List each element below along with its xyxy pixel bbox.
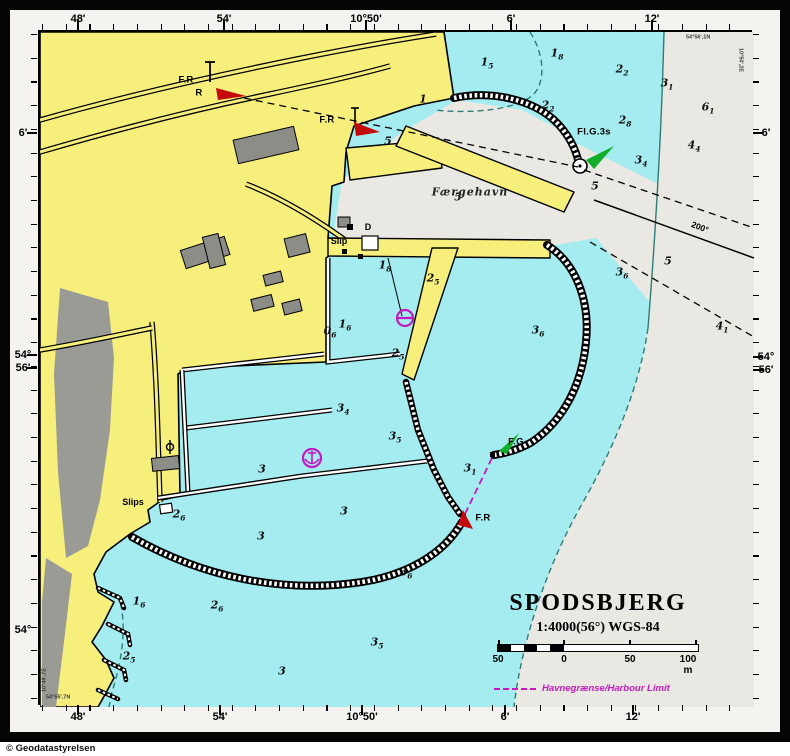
border-tick <box>31 58 37 59</box>
border-tick <box>31 508 37 509</box>
light-label-flg3s: Fl.G.3s <box>577 127 611 138</box>
border-tick <box>31 271 37 272</box>
border-tick <box>632 705 634 715</box>
border-tick <box>31 224 37 225</box>
border-tick <box>279 24 280 30</box>
border-tick <box>27 367 37 369</box>
bearing-label: 200° <box>690 219 710 235</box>
light-label-inner-fr: F.R <box>319 115 334 126</box>
sounding: 22 <box>542 99 555 114</box>
border-tick <box>587 705 588 711</box>
border-tick <box>31 484 37 485</box>
border-tick <box>31 461 37 462</box>
sounding: 22 <box>616 63 629 78</box>
border-tick <box>365 20 367 30</box>
copyright-note: © Geodatastyrelsen <box>6 743 95 754</box>
border-tick <box>31 318 37 319</box>
border-tick <box>706 24 707 30</box>
border-tick <box>753 81 759 82</box>
border-tick <box>350 24 351 30</box>
border-tick <box>492 24 493 30</box>
dolphin-label: D <box>365 222 372 232</box>
border-tick <box>255 24 256 30</box>
border-tick <box>31 555 37 556</box>
border-tick <box>753 461 759 462</box>
border-tick <box>753 366 759 367</box>
border-tick <box>753 200 759 201</box>
scale-bar-labels: 50 0 50 100 m <box>494 654 702 665</box>
sounding: 35 <box>389 430 402 445</box>
scalebar-50-right: 50 <box>624 654 635 665</box>
border-tick <box>31 295 37 296</box>
border-tick <box>635 24 636 30</box>
sounding: 3 <box>340 505 348 518</box>
border-tick <box>753 295 759 296</box>
border-tick <box>31 342 37 343</box>
border-tick <box>469 24 470 30</box>
border-tick <box>184 24 185 30</box>
harbour-limit-legend: Havnegrænse/Harbour Limit <box>494 683 670 694</box>
border-tick <box>31 579 37 580</box>
border-tick <box>113 705 114 711</box>
border-tick <box>137 705 138 711</box>
sounding: 15 <box>481 56 494 71</box>
border-tick <box>31 105 37 106</box>
border-tick <box>753 105 759 106</box>
border-tick <box>374 705 375 711</box>
border-tick <box>753 58 759 59</box>
border-tick <box>753 34 759 35</box>
border-tick <box>232 705 233 711</box>
border-tick <box>31 129 37 130</box>
border-tick <box>492 705 493 711</box>
sounding: 5 <box>591 180 599 193</box>
sounding: 36 <box>532 324 545 339</box>
sounding: 25 <box>123 650 136 665</box>
border-tick <box>219 705 221 715</box>
scalebar-zero: 0 <box>561 654 567 665</box>
border-tick <box>753 484 759 485</box>
border-tick <box>303 24 304 30</box>
chart-title: SPODSBJERG <box>492 590 704 617</box>
border-tick <box>42 24 43 30</box>
sounding: 41 <box>716 320 729 335</box>
sounding: 18 <box>379 259 392 274</box>
border-tick <box>77 20 79 30</box>
sounding: 5 <box>384 135 392 148</box>
border-tick <box>31 247 37 248</box>
border-tick <box>729 705 730 711</box>
sounding: 3 <box>258 463 266 476</box>
border-tick <box>516 24 517 30</box>
border-tick <box>31 153 37 154</box>
border-tick <box>31 81 37 82</box>
border-tick <box>31 650 37 651</box>
chart-scale-note: 1:4000(56°) WGS-84 <box>492 620 704 636</box>
border-tick <box>753 153 759 154</box>
border-tick <box>510 20 512 30</box>
border-tick <box>31 413 37 414</box>
border-tick <box>753 342 759 343</box>
ferry-harbour-label: Færgehavn <box>432 186 508 199</box>
border-tick <box>445 705 446 711</box>
sounding: 36 <box>400 566 413 581</box>
border-tick <box>504 705 506 715</box>
border-tick <box>27 354 37 356</box>
sounding: 1 <box>419 93 427 106</box>
border-tick <box>137 24 138 30</box>
border-tick <box>161 24 162 30</box>
sounding: 35 <box>371 636 384 651</box>
border-tick <box>31 437 37 438</box>
border-tick <box>421 705 422 711</box>
border-tick <box>31 627 37 628</box>
border-tick <box>729 24 730 30</box>
border-tick <box>31 674 37 675</box>
light-label-south-fr: F.R <box>475 513 490 524</box>
border-tick <box>27 132 37 134</box>
border-tick <box>469 705 470 711</box>
border-tick <box>682 24 683 30</box>
border-tick <box>753 674 759 675</box>
border-tick <box>350 705 351 711</box>
scale-bar <box>497 644 699 652</box>
border-tick <box>445 24 446 30</box>
border-tick <box>31 698 37 699</box>
scalebar-100m: 100 m <box>680 654 697 676</box>
border-tick <box>753 650 759 651</box>
border-tick <box>635 705 636 711</box>
sounding: 44 <box>688 139 701 154</box>
border-tick <box>66 705 67 711</box>
border-tick <box>753 390 759 391</box>
border-tick <box>361 705 363 715</box>
border-tick <box>611 24 612 30</box>
border-tick <box>753 224 759 225</box>
border-tick <box>31 176 37 177</box>
border-tick <box>753 698 759 699</box>
sounding: 16 <box>339 318 352 333</box>
border-tick <box>31 34 37 35</box>
border-tick <box>563 705 564 711</box>
border-tick <box>66 24 67 30</box>
sounding: 25 <box>392 347 405 362</box>
border-tick <box>279 705 280 711</box>
corner-coord-bottom-left-lon: 10°49',7E <box>41 668 47 692</box>
border-tick <box>753 437 759 438</box>
border-tick <box>421 24 422 30</box>
sounding: 26 <box>173 508 186 523</box>
border-tick <box>706 705 707 711</box>
border-tick <box>326 705 327 711</box>
border-tick <box>753 132 763 134</box>
slip-label-north: Slip <box>331 236 348 246</box>
border-tick <box>658 705 659 711</box>
border-tick <box>587 24 588 30</box>
border-tick <box>682 705 683 711</box>
border-tick <box>753 129 759 130</box>
border-tick <box>753 413 759 414</box>
light-label-fg: F.G <box>508 437 524 448</box>
border-tick <box>89 24 90 30</box>
border-tick <box>611 705 612 711</box>
border-tick <box>208 24 209 30</box>
sounding: 31 <box>464 462 477 477</box>
border-tick <box>753 271 759 272</box>
border-tick <box>31 603 37 604</box>
sounding: 26 <box>211 599 224 614</box>
border-tick <box>563 24 564 30</box>
corner-coord-top-right-lat: 54°56',1N <box>686 34 710 40</box>
border-tick <box>184 705 185 711</box>
corner-coord-bottom-left-lat: 54°55',7N <box>46 694 70 700</box>
border-tick <box>658 24 659 30</box>
corner-coord-top-right-lon: 10°50',2E <box>738 48 744 72</box>
border-tick <box>31 200 37 201</box>
border-tick <box>89 705 90 711</box>
sounding: 3 <box>257 530 265 543</box>
nautical-chart-spodsbjerg: 1518223161442228345555118251606253636343… <box>0 0 790 756</box>
border-tick <box>161 705 162 711</box>
border-tick <box>232 24 233 30</box>
sounding: 06 <box>324 325 337 340</box>
title-block: SPODSBJERG 1:4000(56°) WGS-84 50 0 50 10… <box>492 590 704 665</box>
border-tick <box>753 318 759 319</box>
sounding: 16 <box>133 595 146 610</box>
border-tick <box>31 532 37 533</box>
edge-label: 54° <box>15 624 32 636</box>
border-tick <box>516 705 517 711</box>
border-tick <box>113 24 114 30</box>
border-tick <box>753 532 759 533</box>
border-tick <box>753 508 759 509</box>
light-label-north-west-fr: F.R <box>178 75 193 86</box>
border-tick <box>398 24 399 30</box>
border-tick <box>398 705 399 711</box>
scalebar-50-left: 50 <box>492 654 503 665</box>
sounding: 28 <box>619 114 632 129</box>
border-tick <box>374 24 375 30</box>
sounding: 34 <box>635 154 648 169</box>
border-tick <box>651 20 653 30</box>
border-tick <box>753 369 763 371</box>
border-tick <box>753 356 763 358</box>
border-tick <box>753 627 759 628</box>
border-tick <box>753 603 759 604</box>
border-tick <box>540 705 541 711</box>
border-tick <box>223 20 225 30</box>
border-tick <box>753 579 759 580</box>
sounding: 25 <box>427 272 440 287</box>
border-tick <box>77 705 79 715</box>
sounding: 61 <box>702 101 715 116</box>
sounding: 36 <box>616 266 629 281</box>
border-tick <box>753 176 759 177</box>
sounding: 3 <box>278 665 286 678</box>
sounding: 31 <box>661 77 674 92</box>
sounding: 5 <box>664 255 672 268</box>
sounding: 34 <box>337 402 350 417</box>
border-tick <box>753 247 759 248</box>
border-tick <box>303 705 304 711</box>
border-tick <box>31 390 37 391</box>
slips-label-south: Slips <box>122 497 144 507</box>
sounding: 18 <box>551 47 564 62</box>
light-label-north-west-r: R <box>195 88 202 99</box>
border-tick <box>208 705 209 711</box>
border-tick <box>540 24 541 30</box>
border-tick <box>42 705 43 711</box>
harbour-limit-label: Havnegrænse/Harbour Limit <box>542 683 670 694</box>
border-tick <box>753 555 759 556</box>
harbour-limit-dash-sample <box>494 688 536 690</box>
border-tick <box>326 24 327 30</box>
border-tick <box>255 705 256 711</box>
